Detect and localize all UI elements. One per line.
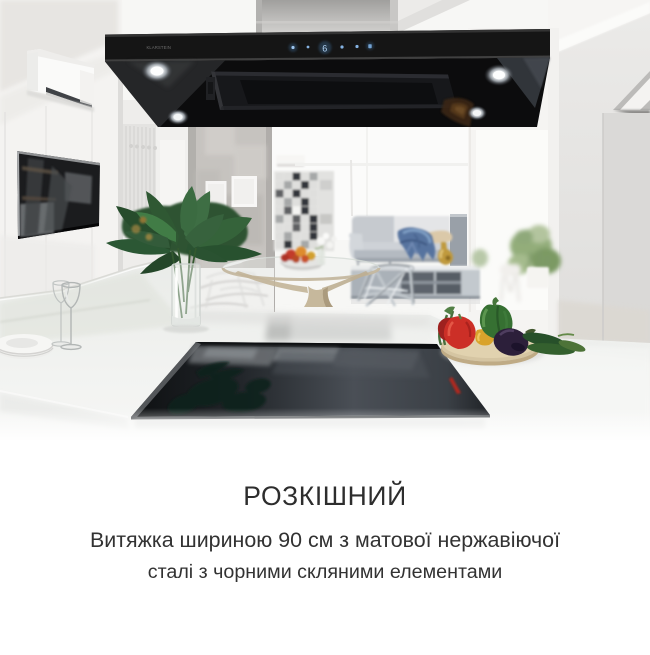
svg-text:6: 6 <box>322 44 327 54</box>
svg-text:KLARSTEIN: KLARSTEIN <box>147 45 172 50</box>
